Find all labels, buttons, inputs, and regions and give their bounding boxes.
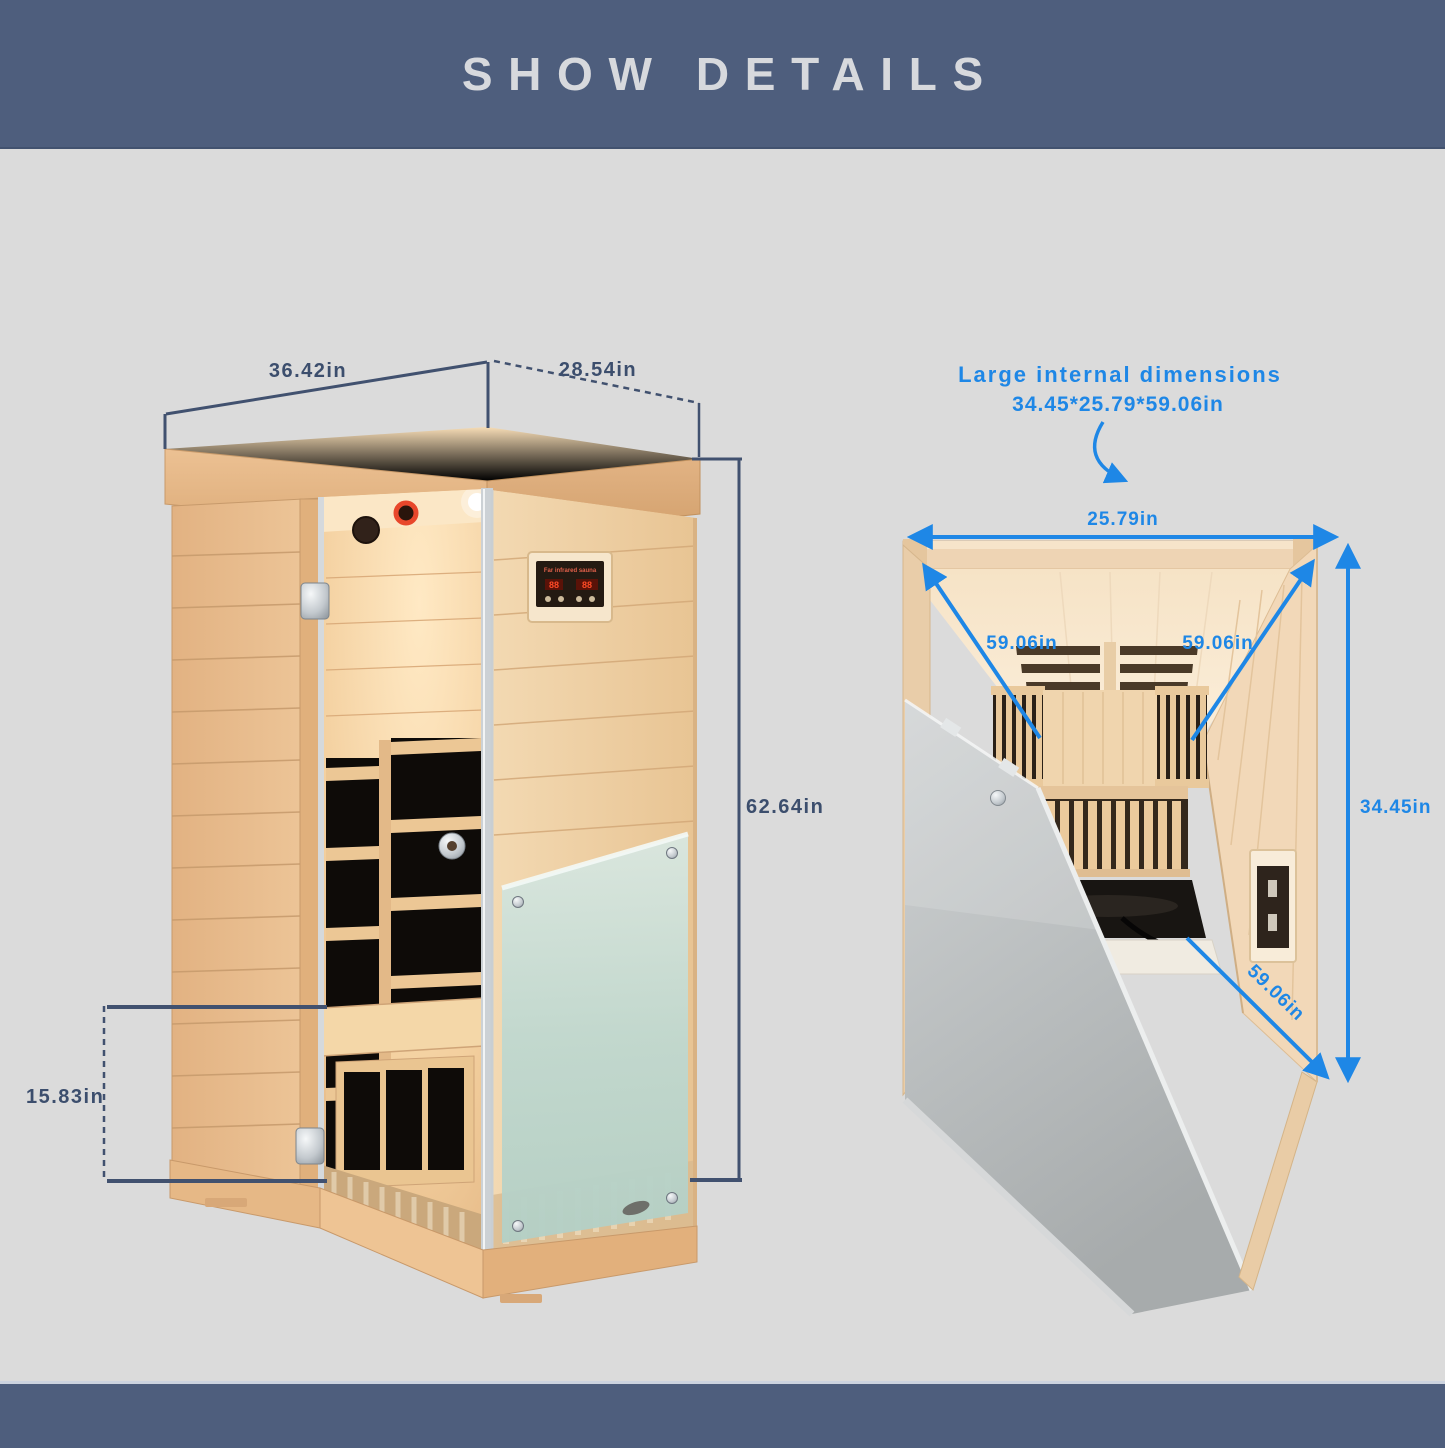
back-wall-center bbox=[1043, 690, 1157, 786]
sauna-bench bbox=[322, 998, 484, 1056]
base-edge-strip bbox=[1239, 1072, 1317, 1290]
glass-bolt bbox=[513, 1221, 524, 1232]
door-hinge-top bbox=[301, 583, 329, 619]
front-glass-section: Far infrared sauna 88 88 bbox=[492, 490, 697, 1252]
header-banner: SHOW DETAILS bbox=[0, 0, 1445, 149]
door-handle-cap bbox=[447, 841, 457, 851]
dim-label-internal-height: 34.45in bbox=[1360, 797, 1431, 818]
panel-temp-readout: 88 bbox=[549, 580, 559, 590]
page-title: SHOW DETAILS bbox=[446, 47, 999, 101]
dim-label-diagonal-right: 59.06in bbox=[1182, 633, 1253, 654]
panel-time-readout: 88 bbox=[582, 580, 592, 590]
interior-speaker bbox=[353, 517, 379, 543]
glass-bolt bbox=[667, 848, 678, 859]
bench-front-heater bbox=[336, 1056, 474, 1188]
left-sauna-figure: Far infrared sauna 88 88 bbox=[165, 427, 700, 1303]
right-guard-rail bbox=[1155, 686, 1209, 788]
show-details-illustration: Far infrared sauna 88 88 bbox=[0, 0, 1445, 1445]
wall-base-band bbox=[1028, 786, 1188, 799]
curved-pointer-arrow bbox=[1095, 422, 1124, 480]
dim-label-diagonal-left: 59.06in bbox=[986, 633, 1057, 654]
right-sauna-figure bbox=[903, 539, 1317, 1314]
dim-label-base-height: 15.83in bbox=[26, 1086, 104, 1108]
internal-dims-heading: Large internal dimensions bbox=[958, 362, 1282, 387]
dim-label-height: 62.64in bbox=[746, 796, 824, 818]
glass-bolt bbox=[513, 897, 524, 908]
dim-label-internal-width: 25.79in bbox=[1087, 509, 1158, 530]
wall-control-panel bbox=[1250, 850, 1296, 962]
footer-banner bbox=[0, 1381, 1445, 1448]
glass-bolt bbox=[667, 1193, 678, 1204]
door-hinge-bottom bbox=[296, 1128, 324, 1164]
door-glass-interior bbox=[322, 486, 493, 1251]
infrared-heater-right bbox=[391, 738, 481, 1008]
internal-dims-size: 34.45*25.79*59.06in bbox=[1012, 393, 1224, 416]
sauna-left-wall-panel bbox=[172, 498, 322, 1190]
back-wall-lip bbox=[903, 541, 1317, 549]
ceiling-light-red bbox=[396, 503, 416, 523]
door-handle-knob bbox=[991, 791, 1006, 806]
interior-control-panel: Far infrared sauna 88 88 bbox=[528, 552, 612, 622]
dim-label-depth: 28.54in bbox=[559, 359, 637, 381]
frosted-privacy-glass bbox=[502, 834, 688, 1243]
dim-label-width: 36.42in bbox=[269, 360, 347, 382]
control-panel-label: Far infrared sauna bbox=[544, 568, 597, 574]
wall-panel-screen bbox=[1257, 866, 1289, 948]
